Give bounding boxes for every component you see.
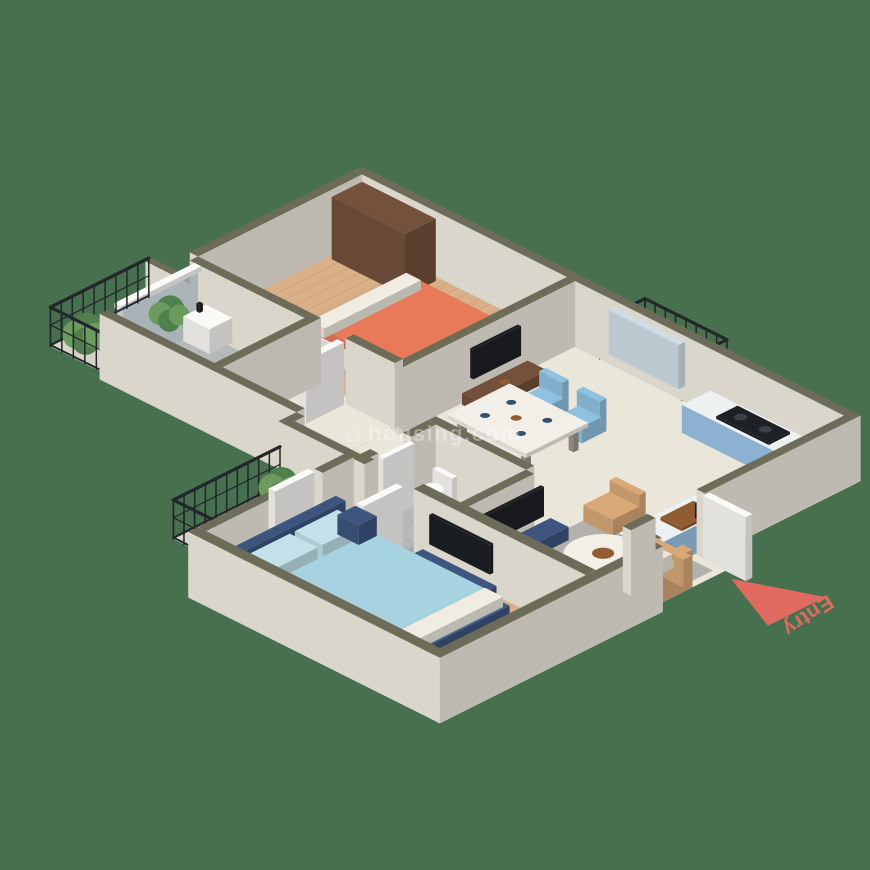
coffee-table-decor bbox=[592, 548, 614, 559]
kitchen-burner-2 bbox=[759, 426, 772, 433]
bath1-tap bbox=[196, 302, 203, 314]
plate-1 bbox=[503, 398, 518, 406]
watermark-house-icon: ⌂ bbox=[346, 420, 362, 448]
plate-3 bbox=[477, 412, 492, 420]
kitchen-burner-1 bbox=[734, 414, 747, 421]
wall-entry-s bbox=[623, 514, 656, 596]
plate-2 bbox=[540, 416, 555, 424]
floorplan-stage: ⌂ housing.com Entry bbox=[0, 0, 870, 870]
console-decor bbox=[499, 379, 510, 385]
watermark-text: housing.com bbox=[368, 421, 521, 447]
watermark: ⌂ housing.com bbox=[346, 420, 521, 448]
